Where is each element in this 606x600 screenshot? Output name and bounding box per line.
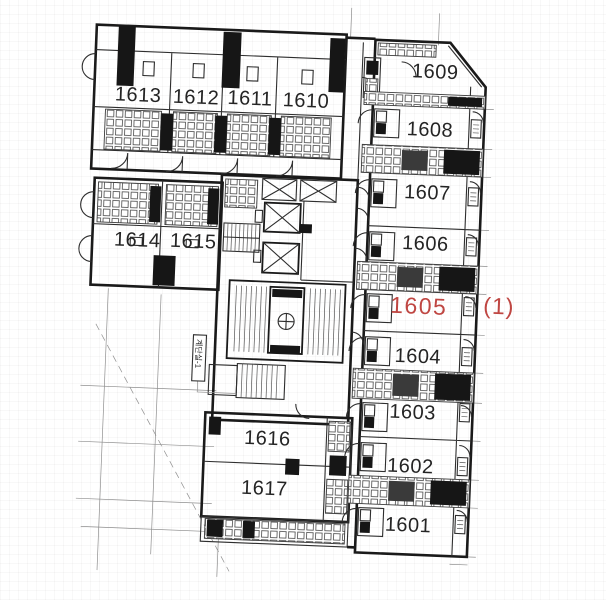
fixture-band [348, 475, 470, 508]
stair-room-label: 계단실-1 [193, 339, 204, 369]
room-label-1603: 1603 [389, 401, 436, 425]
room-label-1604: 1604 [394, 345, 441, 369]
bathroom-unit [226, 114, 272, 156]
room-label-1612: 1612 [172, 86, 219, 110]
room-label-1616: 1616 [244, 427, 291, 451]
room-label-1615: 1615 [170, 230, 217, 254]
room-label-1601: 1601 [384, 514, 431, 538]
fixture-band [361, 144, 483, 177]
lower-stair-icon [208, 362, 285, 399]
room-label-1609: 1609 [412, 60, 459, 84]
unit-count-annotation: (1) [483, 292, 515, 319]
floor-plan-page: 계단실-1 [0, 0, 606, 600]
fixture-band [356, 261, 478, 294]
room-label-1610: 1610 [282, 89, 329, 113]
elevator-machine-room [227, 280, 346, 363]
fixture-band [352, 368, 474, 403]
bathroom-unit [328, 421, 350, 452]
room-label-1606: 1606 [402, 232, 449, 256]
balcony-marks [455, 120, 482, 534]
room-label-1605-highlighted: 1605 [390, 292, 448, 320]
room-label-1608: 1608 [406, 118, 453, 142]
upper-stair-icon [223, 223, 260, 252]
room-label-1611: 1611 [227, 87, 273, 111]
room-label-1607: 1607 [404, 181, 451, 205]
elevator-icon [253, 242, 299, 274]
room-label-1613: 1613 [114, 83, 161, 107]
room-label-1614: 1614 [114, 228, 161, 252]
bathroom-unit [325, 479, 347, 514]
fixture-band [364, 91, 485, 109]
room-label-1617: 1617 [241, 477, 288, 501]
elevator-icon [255, 202, 301, 233]
floor-plan-canvas: 계단실-1 [0, 0, 606, 600]
bathroom-unit [172, 112, 218, 154]
room-label-1602: 1602 [387, 455, 434, 479]
bathroom-unit [104, 109, 162, 151]
bathroom-unit [280, 116, 332, 158]
floor-plan-drawing: 계단실-1 [62, 0, 526, 588]
